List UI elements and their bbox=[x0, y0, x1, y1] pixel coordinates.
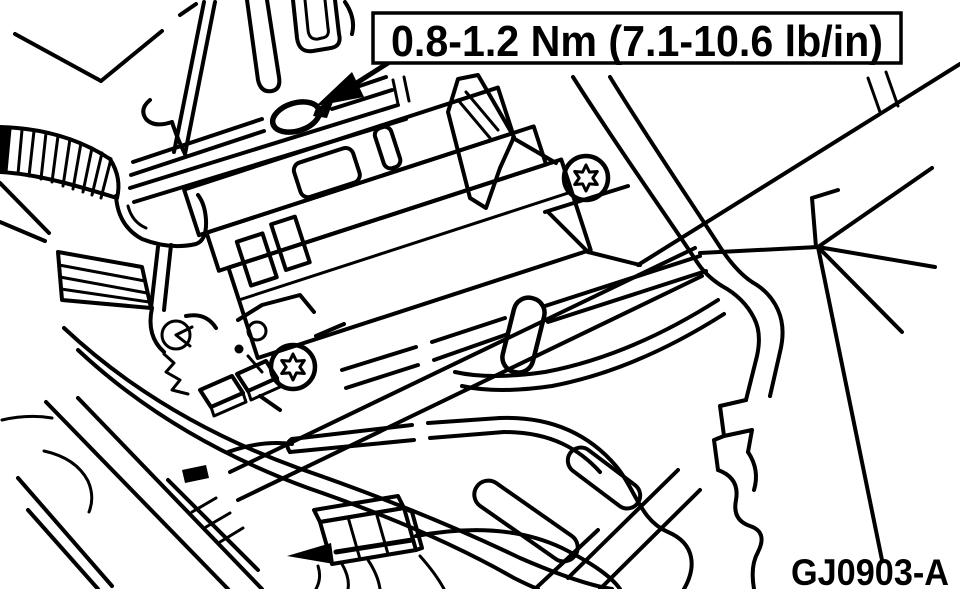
tubes-top-center-path bbox=[345, 2, 353, 34]
corrugated-hose bbox=[0, 127, 118, 198]
bracket-cluster bbox=[151, 295, 345, 416]
tubes-top-center-path bbox=[404, 77, 409, 101]
background-lines-top-left-path bbox=[101, 31, 162, 81]
fan-lines-right-path bbox=[818, 168, 932, 247]
connector-block-path bbox=[316, 556, 444, 589]
cables-bottom-left-path bbox=[44, 451, 92, 512]
corrugated-hose-path bbox=[6, 129, 111, 198]
background-lines-top-left-path bbox=[180, 4, 196, 15]
panel-slot bbox=[469, 475, 583, 567]
cables-bottom-left-path bbox=[2, 416, 52, 420]
torx-screw-upper bbox=[564, 156, 608, 200]
bracket-cluster-path bbox=[200, 376, 243, 407]
straps-path bbox=[588, 252, 640, 265]
cables-bottom-left-path bbox=[18, 478, 112, 586]
connector-block-path bbox=[348, 512, 388, 559]
service-manual-figure: 0.8-1.2 Nm (7.1-10.6 lb/in) GJ0903-A bbox=[0, 0, 960, 589]
straps-path bbox=[513, 138, 556, 163]
module-window bbox=[292, 146, 362, 199]
frame-pillar-path bbox=[573, 77, 759, 400]
fan-lines-right-path bbox=[638, 64, 960, 265]
torque-callout-text: 0.8-1.2 Nm (7.1-10.6 lb/in) bbox=[391, 17, 883, 66]
fan-lines-right-path bbox=[700, 247, 818, 253]
frame-pillar-path bbox=[748, 452, 756, 490]
torx-screw-upper-path bbox=[564, 156, 608, 200]
cables-bottom-left bbox=[2, 398, 262, 589]
connector-block-path bbox=[320, 508, 416, 564]
torx-star-icon bbox=[282, 354, 305, 380]
slotted-panel bbox=[469, 442, 700, 589]
module-slot bbox=[373, 125, 402, 170]
connector-block-path bbox=[336, 540, 412, 552]
tubes-top-center-path bbox=[305, 0, 328, 39]
cables-bottom-left-path bbox=[168, 480, 258, 570]
cable-tie bbox=[182, 465, 209, 483]
corrugated-hose-path bbox=[0, 172, 117, 198]
bracket-cluster-path bbox=[260, 396, 280, 410]
frame-pillar-path bbox=[714, 400, 752, 470]
background-lines-top-left-path bbox=[15, 34, 101, 81]
fan-lines-right-path bbox=[818, 247, 882, 560]
module-foot-right bbox=[271, 217, 310, 270]
rivet-dot bbox=[235, 345, 244, 354]
torx-star-icon bbox=[575, 165, 598, 191]
background-lines-top-left-path bbox=[143, 100, 172, 124]
figure-code-label: GJ0903-A bbox=[791, 552, 949, 589]
corrugated-hose-path bbox=[110, 159, 118, 198]
bracket-cluster-path bbox=[238, 295, 314, 320]
tubes-top-center-path bbox=[247, 0, 279, 91]
cables-bottom-left-path bbox=[78, 398, 262, 589]
line-art-canvas: 0.8-1.2 Nm (7.1-10.6 lb/in) GJ0903-A bbox=[0, 0, 960, 589]
fan-lines-right-path bbox=[812, 190, 838, 247]
tubes-top-center-path bbox=[293, 0, 340, 51]
control-module bbox=[184, 76, 591, 364]
pointer-arrowhead-icon bbox=[287, 543, 334, 564]
tubes-top-center-path bbox=[393, 80, 398, 104]
ribbed-connector-left-path bbox=[59, 265, 149, 302]
hose-boot-path bbox=[151, 247, 158, 308]
control-module-path bbox=[184, 88, 513, 236]
hose-boot-path bbox=[128, 206, 146, 228]
cable-rod bbox=[342, 256, 706, 388]
fan-lines-right bbox=[638, 64, 960, 560]
bracket-cluster-path bbox=[164, 354, 188, 394]
torque-callout: 0.8-1.2 Nm (7.1-10.6 lb/in) bbox=[316, 13, 901, 106]
cables-bottom-left-path bbox=[28, 510, 98, 589]
bracket-diagonals-path bbox=[238, 276, 702, 500]
hose-boot-path bbox=[164, 245, 171, 310]
ribbed-connector-left bbox=[0, 183, 151, 308]
cables-bottom-left-path bbox=[192, 498, 243, 542]
